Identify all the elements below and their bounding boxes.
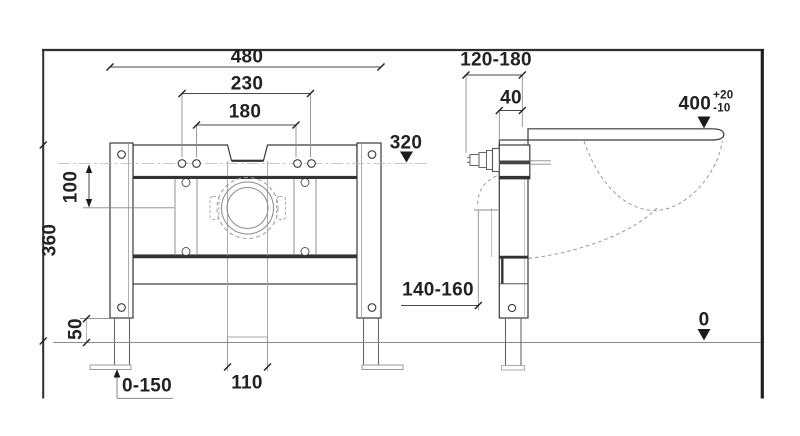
dim-seat-height-value: 400 bbox=[678, 95, 711, 114]
dim-floor-level-label: 0 bbox=[699, 311, 710, 330]
dim-seat-height-label: 400 +20 -10 bbox=[678, 92, 733, 115]
side-view-frame bbox=[499, 140, 530, 370]
drawing-linework bbox=[0, 0, 800, 436]
dim-rail-depth-label: 40 bbox=[500, 89, 522, 108]
dimension-lines bbox=[80, 67, 522, 398]
dim-seat-height-tol-minus: -10 bbox=[713, 103, 733, 116]
drawing-border bbox=[42, 49, 764, 399]
dim-frame-height-label: 360 bbox=[41, 224, 60, 257]
dim-seat-height-tol-plus: +20 bbox=[713, 89, 733, 102]
dim-drain-channel-width-label: 110 bbox=[231, 374, 263, 393]
dim-leg-adjustment-label: 0-150 bbox=[122, 377, 172, 396]
dim-hole-row-offset-label: 100 bbox=[62, 171, 81, 204]
technical-drawing-canvas: 480 230 180 320 100 360 50 0-150 110 120… bbox=[0, 0, 800, 436]
dim-overall-width-label: 480 bbox=[231, 48, 264, 67]
dim-hole-spacing-outer-label: 230 bbox=[231, 75, 264, 94]
flush-opening bbox=[210, 178, 286, 239]
dim-leg-height-label: 50 bbox=[67, 318, 86, 340]
dim-hole-spacing-inner-label: 180 bbox=[229, 103, 262, 122]
dim-wall-clearance-label: 120-180 bbox=[460, 51, 532, 70]
frame-legs-front bbox=[90, 318, 403, 370]
level-marker-floor bbox=[698, 329, 711, 341]
level-marker-400 bbox=[698, 117, 711, 129]
front-view-frame bbox=[110, 143, 381, 318]
dim-drain-connection-height-label: 140-160 bbox=[402, 281, 474, 300]
frame-struts bbox=[175, 179, 316, 256]
dim-top-fixing-level-label: 320 bbox=[390, 134, 423, 153]
